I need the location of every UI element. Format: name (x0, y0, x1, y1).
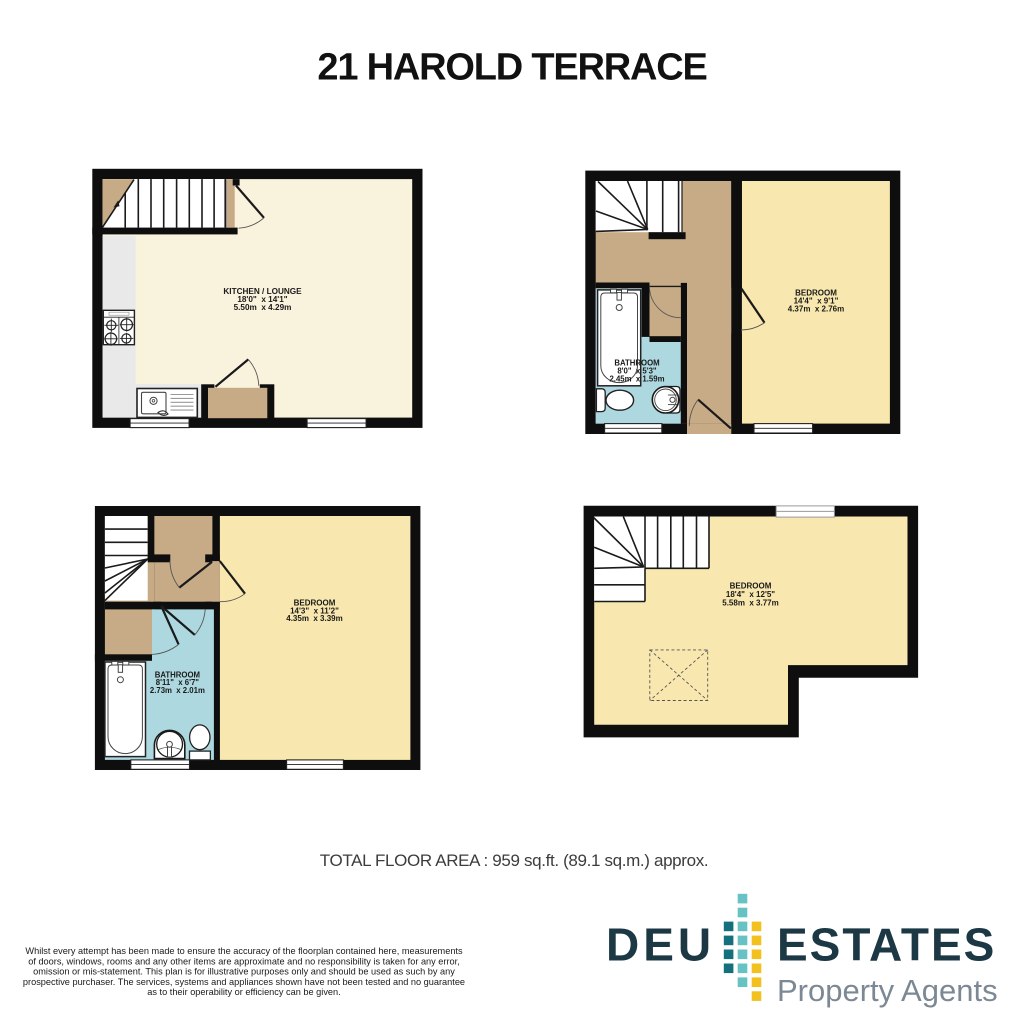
svg-text:ESTATES: ESTATES (777, 919, 996, 971)
svg-text:2.45m x 1.59m: 2.45m x 1.59m (609, 374, 664, 383)
svg-text:4.37m x 2.76m: 4.37m x 2.76m (788, 305, 844, 314)
svg-text:prospective purchaser. The ser: prospective purchaser. The services, sys… (23, 977, 465, 987)
svg-text:5.50m x 4.29m: 5.50m x 4.29m (234, 303, 292, 312)
svg-text:of doors, windows, rooms and a: of doors, windows, rooms and any other i… (28, 956, 460, 966)
svg-text:DEU: DEU (606, 919, 715, 971)
svg-text:21 HAROLD TERRACE: 21 HAROLD TERRACE (317, 46, 706, 88)
svg-text:TOTAL FLOOR AREA : 959 sq.ft.: TOTAL FLOOR AREA : 959 sq.ft. (89.1 sq.m… (320, 851, 708, 870)
svg-text:Whilst every attempt has been: Whilst every attempt has been made to en… (25, 946, 463, 956)
svg-text:4.35m x 3.39m: 4.35m x 3.39m (286, 614, 342, 623)
svg-text:as to their operability or eff: as to their operability or efficiency ca… (147, 987, 340, 997)
svg-text:Property Agents: Property Agents (777, 973, 998, 1008)
svg-text:omission or mis-statement. Thi: omission or mis-statement. This plan is … (33, 967, 455, 977)
svg-text:5.58m x 3.77m: 5.58m x 3.77m (722, 598, 778, 607)
svg-text:2.73m x 2.01m: 2.73m x 2.01m (150, 686, 205, 695)
